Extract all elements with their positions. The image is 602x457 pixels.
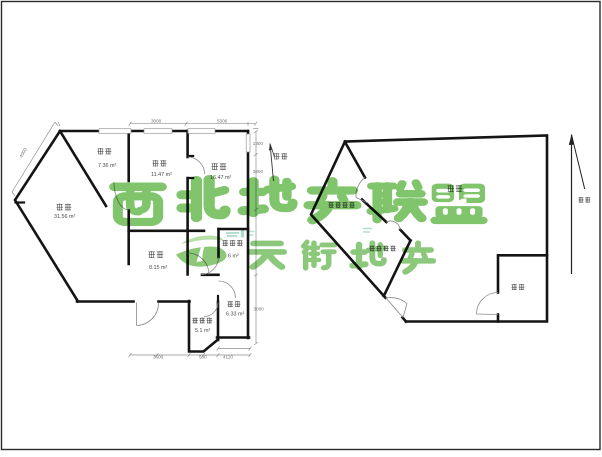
svg-text:31.56 m²: 31.56 m² [54, 214, 75, 220]
svg-text:7.36 m²: 7.36 m² [98, 163, 116, 169]
svg-text:3600: 3600 [253, 169, 264, 174]
svg-text:1300: 1300 [253, 141, 264, 146]
svg-text:6 m²: 6 m² [228, 254, 239, 260]
svg-text:8.15 m²: 8.15 m² [149, 265, 167, 271]
svg-text:3600: 3600 [153, 355, 164, 360]
svg-text:3000: 3000 [254, 307, 265, 312]
svg-text:5.1 m²: 5.1 m² [195, 328, 210, 334]
svg-text:500: 500 [199, 355, 207, 360]
svg-text:5306: 5306 [217, 119, 228, 124]
svg-text:6.33 m²: 6.33 m² [226, 312, 244, 318]
svg-text:3000: 3000 [151, 119, 162, 124]
svg-text:11.47 m²: 11.47 m² [151, 172, 172, 178]
svg-text:4110: 4110 [223, 355, 233, 360]
